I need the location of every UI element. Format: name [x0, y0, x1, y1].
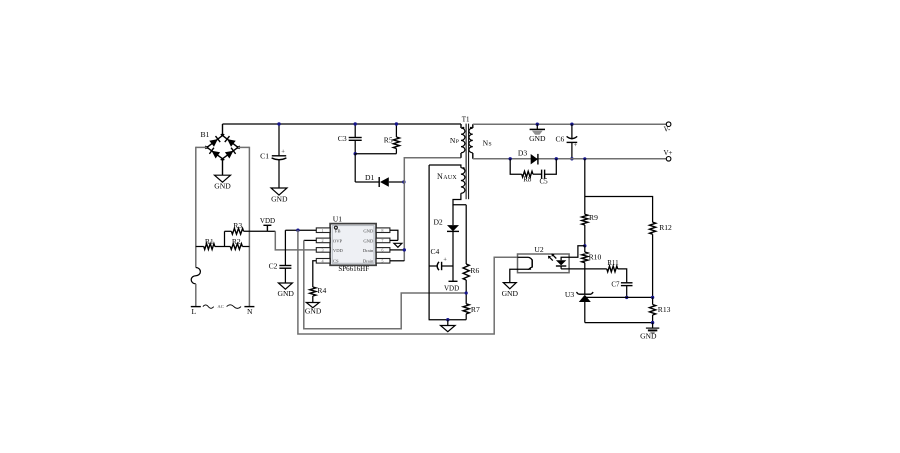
svg-text:+: +	[574, 142, 578, 149]
svg-text:C2: C2	[269, 262, 278, 271]
svg-text:AUX: AUX	[443, 175, 457, 181]
svg-text:1: 1	[322, 228, 324, 233]
svg-text:V-: V-	[664, 126, 671, 134]
svg-text:GND: GND	[305, 307, 322, 316]
svg-text:Drain: Drain	[363, 248, 374, 253]
svg-text:C4: C4	[430, 247, 439, 256]
svg-text:U3: U3	[565, 290, 574, 299]
svg-text:L: L	[191, 307, 196, 316]
svg-text:C5: C5	[540, 177, 549, 185]
svg-text:R2: R2	[232, 237, 241, 246]
svg-text:VDD: VDD	[444, 284, 459, 292]
svg-text:R4: R4	[317, 286, 326, 295]
svg-text:VDD: VDD	[260, 217, 275, 225]
svg-text:T1: T1	[462, 116, 470, 124]
svg-text:GND: GND	[363, 238, 374, 243]
svg-text:R11: R11	[607, 259, 619, 267]
svg-text:D3: D3	[518, 148, 527, 157]
svg-text:GND: GND	[502, 289, 519, 298]
svg-text:5: 5	[381, 259, 383, 264]
svg-text:B1: B1	[201, 130, 210, 139]
svg-text:AC: AC	[217, 304, 223, 309]
svg-text:SP6616HF: SP6616HF	[338, 265, 369, 273]
svg-text:+: +	[281, 149, 285, 156]
svg-text:C6: C6	[555, 135, 564, 144]
svg-text:R8: R8	[523, 176, 532, 184]
svg-text:VDD: VDD	[333, 248, 344, 253]
svg-text:R1: R1	[205, 237, 214, 246]
svg-text:C3: C3	[338, 134, 347, 143]
svg-text:N: N	[247, 307, 253, 316]
svg-text:GND: GND	[271, 194, 288, 203]
svg-text:C1: C1	[260, 152, 269, 161]
svg-text:N: N	[437, 172, 443, 181]
svg-text:7: 7	[381, 238, 383, 243]
svg-text:CS: CS	[333, 259, 339, 264]
svg-text:V+: V+	[663, 149, 672, 157]
svg-text:R5: R5	[384, 135, 393, 144]
svg-text:R9: R9	[589, 213, 598, 222]
svg-text:GND: GND	[640, 332, 657, 341]
svg-text:D1: D1	[365, 173, 374, 182]
svg-text:3: 3	[322, 248, 324, 253]
svg-text:GND: GND	[214, 182, 231, 191]
svg-text:P: P	[456, 139, 459, 145]
svg-text:D2: D2	[433, 217, 442, 226]
svg-text:R7: R7	[471, 305, 480, 314]
svg-text:GND: GND	[529, 134, 546, 143]
svg-text:R6: R6	[470, 266, 479, 275]
svg-text:R3: R3	[233, 221, 242, 230]
svg-text:R10: R10	[589, 253, 602, 262]
svg-text:+: +	[443, 256, 447, 263]
svg-text:GND: GND	[363, 228, 374, 233]
svg-text:R12: R12	[659, 223, 672, 232]
svg-text:FB: FB	[335, 228, 341, 233]
svg-text:C7: C7	[611, 281, 620, 289]
svg-text:S: S	[489, 142, 492, 148]
svg-text:R13: R13	[658, 305, 671, 314]
svg-text:U1: U1	[333, 214, 342, 223]
svg-text:U2: U2	[534, 245, 543, 254]
svg-text:8: 8	[381, 228, 383, 233]
svg-text:6: 6	[381, 248, 383, 253]
svg-text:Drain: Drain	[363, 259, 374, 264]
svg-text:2: 2	[322, 238, 324, 243]
svg-text:GND: GND	[277, 289, 294, 298]
svg-text:OVP: OVP	[333, 238, 343, 243]
